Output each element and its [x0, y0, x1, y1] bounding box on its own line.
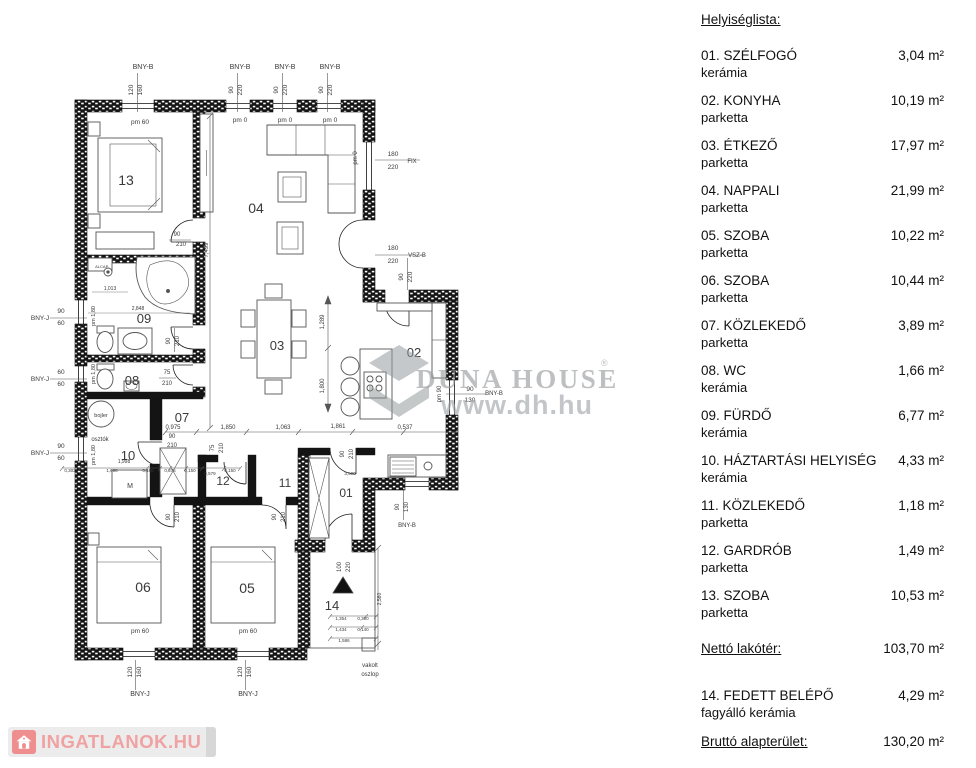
room-area: 4,29 m² [898, 688, 944, 704]
dresser [96, 232, 154, 249]
room-material: kerámia [701, 65, 944, 80]
plan-label: 90 [395, 503, 401, 510]
plan-label: 0,302 [64, 468, 76, 473]
chair [265, 380, 282, 394]
room-name: 10. HÁZTARTÁSI HELYISÉG [701, 453, 877, 469]
plan-label: ALCAP. [95, 264, 109, 269]
plan-label: 100 [337, 561, 343, 572]
room-material: kerámia [701, 470, 944, 485]
plan-label: 60 [57, 455, 65, 462]
room-name: 07. KÖZLEKEDŐ [701, 318, 806, 334]
plan-label: 1,354 [335, 616, 347, 621]
chair [241, 310, 255, 327]
counter [377, 303, 432, 311]
plan-label: 1,434 [335, 627, 347, 632]
room-list-item: 04. NAPPALI21,99 m²parketta [701, 183, 944, 215]
room-name: 01. SZÉLFOGÓ [701, 48, 797, 64]
room-name: 11. KÖZLEKEDŐ [701, 498, 805, 514]
plan-label: 60 [57, 320, 65, 327]
plan-label: M [127, 483, 133, 490]
sink [424, 462, 432, 470]
plan-label: pm 0 [233, 117, 248, 124]
room-list-item: 09. FÜRDŐ6,77 m²kerámia [701, 408, 944, 440]
plan-label: BNY-B [133, 64, 154, 71]
chair [241, 341, 255, 358]
plan-label: 1,063 [275, 425, 291, 431]
plan-label: 14 [325, 598, 339, 613]
room-list-item: 12. GARDRÓB1,49 m²parketta [701, 543, 944, 575]
room-list-item: 06. SZOBA10,44 m²parketta [701, 273, 944, 305]
plan-label: 90 [57, 308, 65, 315]
room-area: 3,04 m² [898, 48, 944, 64]
room-area: 10,44 m² [891, 273, 944, 289]
room-area: 6,77 m² [898, 408, 944, 424]
room-name: 08. WC [701, 363, 746, 379]
room-area: 10,22 m² [891, 228, 944, 244]
plan-label: BNY-B [230, 64, 251, 71]
plan-label: 3,500 [344, 471, 356, 476]
room-area: 1,49 m² [898, 543, 944, 559]
plan-label: 120 [127, 666, 134, 677]
room-area: 1,18 m² [898, 498, 944, 514]
room-list-item: 07. KÖZLEKEDŐ3,89 m²parketta [701, 318, 944, 350]
logo-cap [206, 727, 216, 757]
plan-label: 75 [210, 444, 216, 451]
room-list-item: 13. SZOBA10,53 m²parketta [701, 588, 944, 620]
net-area-label: Nettó lakótér: [701, 640, 781, 657]
plan-label: 0,375 [164, 468, 176, 473]
plan-label: 0,537 [397, 425, 413, 431]
plan-label: 220 [282, 84, 289, 95]
plan-label: BNY-J [130, 691, 150, 698]
plan-label: 160 [246, 666, 253, 677]
plan-label: 210 [219, 442, 225, 453]
plan-label: pm 1,80 [91, 445, 97, 465]
nightstand [88, 122, 100, 136]
plan-label: 220 [346, 561, 352, 572]
room-area: 10,19 m² [891, 93, 944, 109]
plan-label: 210 [281, 511, 287, 522]
plan-label: pm 1,80 [91, 364, 97, 384]
room-name: 05. SZOBA [701, 228, 769, 244]
plan-label: 1,998 [118, 459, 131, 465]
plan-label: 90 [166, 337, 172, 344]
plan-label: BNY-J [31, 315, 49, 322]
plan-label: 13 [118, 172, 134, 188]
room-area: 1,66 m² [898, 363, 944, 379]
room-list-items: 01. SZÉLFOGÓ3,04 m²kerámia02. KONYHA10,1… [701, 48, 944, 620]
plan-label: FIX [407, 159, 416, 165]
room-area: 3,89 m² [898, 318, 944, 334]
plan-label: 0,140 [357, 627, 369, 632]
plan-label: pm 60 [239, 628, 257, 635]
plan-label: 120 [128, 84, 135, 95]
house-icon [12, 730, 36, 754]
room-material: parketta [701, 110, 944, 125]
plan-label: 210 [167, 443, 178, 449]
plan-label: 08 [125, 373, 139, 388]
room-material: parketta [701, 245, 944, 260]
column [362, 638, 375, 651]
room-name: 02. KONYHA [701, 93, 781, 109]
plan-label: 90 [398, 273, 405, 281]
plan-label: 130 [404, 501, 410, 512]
plan-label: 90 [318, 86, 325, 94]
plan-label: 210 [162, 381, 173, 387]
watermark: DUNA HOUSE ® www.dh.hu [369, 345, 619, 420]
plan-label: 1,800 [320, 378, 326, 394]
entry-arrow [333, 577, 353, 593]
plan-label: 2,848 [132, 306, 145, 312]
plan-label: VSZ-B [408, 253, 426, 259]
plan-label: 60 [57, 369, 65, 376]
room-material: parketta [701, 200, 944, 215]
plan-label: 75 [164, 370, 171, 376]
plan-label: 1,861 [330, 424, 346, 430]
plan-label: pm 60 [131, 628, 149, 635]
plan-label: 1,698 [106, 468, 118, 473]
room-list-title: Helyiséglista: [701, 12, 944, 27]
net-area-row: Nettó lakótér: 103,70 m² [701, 640, 944, 657]
plan-label: 07 [175, 410, 189, 425]
plan-label: 0,579 [204, 471, 216, 476]
room-list-item: 02. KONYHA10,19 m²parketta [701, 93, 944, 125]
stool [341, 378, 359, 396]
plan-label: 0,460 [142, 468, 154, 473]
plan-label: pm 0 [278, 117, 293, 124]
plan-label: 90 [273, 86, 280, 94]
room-list-item: 08. WC1,66 m²kerámia [701, 363, 944, 395]
floor-plan: BNY-B120160pm 60BNY-B90220pm 0BNY-B90220… [0, 0, 700, 768]
plan-label: 210 [175, 335, 181, 346]
plan-label: 90 [166, 513, 172, 520]
plan-label: 180 [388, 151, 399, 158]
plan-label: 220 [237, 84, 244, 95]
plan-label: 60 [57, 381, 65, 388]
plan-label: 90 [228, 86, 235, 94]
plan-label: 0,975 [165, 425, 181, 431]
plan-label: 01 [339, 486, 353, 500]
toilet [97, 369, 113, 389]
plan-label: pm 1,80 [91, 306, 97, 326]
gross-area-label: Bruttó alapterület: [701, 733, 808, 750]
room-material: parketta [701, 290, 944, 305]
plan-label: BNY-J [31, 450, 49, 457]
plan-label: 0,150 [184, 468, 196, 473]
room-list-item-extra: 14. FEDETT BELÉPŐ 4,29 m² fagyálló kerám… [701, 688, 944, 720]
plan-label: osztók [91, 437, 109, 443]
plan-label: pm 60 [131, 119, 149, 126]
room-name: 04. NAPPALI [701, 183, 780, 199]
plan-label: BNY-J [31, 376, 49, 383]
plan-label: 160 [137, 84, 144, 95]
plan-label: 1,586 [338, 638, 350, 643]
plan-label: 11 [279, 476, 292, 490]
watermark-reg: ® [601, 358, 608, 368]
room-area: 21,99 m² [891, 183, 944, 199]
plan-label: 05 [239, 580, 255, 596]
plan-label: 04 [248, 200, 264, 216]
room-material: kerámia [701, 380, 944, 395]
plan-label: BNY-B [320, 64, 341, 71]
plan-label: 7,499 [204, 242, 210, 258]
room-name: 03. ÉTKEZŐ [701, 138, 778, 154]
plan-label: bojler [94, 413, 108, 419]
room-name: 14. FEDETT BELÉPŐ [701, 688, 834, 704]
plan-label: BNY-J [238, 691, 258, 698]
nightstand [88, 214, 100, 228]
plan-label: 90 [174, 232, 181, 238]
plan-label: 120 [237, 666, 244, 677]
plan-label: 160 [136, 666, 143, 677]
room-area: 10,53 m² [891, 588, 944, 604]
plan-label: 90 [57, 443, 65, 450]
room-list-item: 10. HÁZTARTÁSI HELYISÉG4,33 m²kerámia [701, 453, 944, 485]
plan-label: 12 [216, 474, 230, 488]
washbasin [123, 333, 147, 350]
stool [341, 357, 359, 375]
plan-label: 220 [388, 164, 399, 171]
plan-label: 1,013 [104, 286, 117, 292]
room-material: fagyálló kerámia [701, 705, 944, 720]
gross-area-value: 130,20 m² [883, 733, 944, 750]
plan-label: 220 [407, 271, 414, 282]
gross-area-row: Bruttó alapterület: 130,20 m² [701, 733, 944, 750]
room-area: 17,97 m² [891, 138, 944, 154]
logo-text: INGATLANOK.HU [41, 731, 201, 753]
plan-label: 220 [327, 84, 334, 95]
plan-label: pm 0 [323, 117, 338, 124]
room-area: 4,33 m² [898, 453, 944, 469]
plan-label: 06 [135, 579, 151, 595]
room-list-panel: Helyiséglista: 01. SZÉLFOGÓ3,04 m²kerámi… [701, 12, 944, 750]
plan-label: 09 [137, 311, 151, 326]
corner-bathtub [136, 257, 195, 314]
page: BNY-B120160pm 60BNY-B90220pm 0BNY-B90220… [0, 0, 976, 768]
plan-label: 220 [388, 258, 399, 265]
room-material: parketta [701, 515, 944, 530]
room-list-item: 01. SZÉLFOGÓ3,04 m²kerámia [701, 48, 944, 80]
net-area-value: 103,70 m² [883, 640, 944, 657]
bed-06 [97, 547, 161, 623]
plan-label: 90 [340, 450, 346, 457]
plan-label: pm 0 [353, 151, 359, 165]
room-material: kerámia [701, 425, 944, 440]
plan-label: 90 [169, 434, 176, 440]
room-material: parketta [701, 605, 944, 620]
room-material: parketta [701, 335, 944, 350]
stool [341, 398, 359, 416]
room-material: parketta [701, 155, 944, 170]
chair [265, 284, 282, 298]
room-name: 06. SZOBA [701, 273, 769, 289]
plan-label: 0,300 [357, 616, 369, 621]
plan-label: 1,850 [220, 425, 236, 431]
plan-label: 1,289 [320, 314, 326, 330]
room-list-item: 03. ÉTKEZŐ17,97 m²parketta [701, 138, 944, 170]
plan-label: 210 [176, 242, 187, 248]
plan-label: 2,580 [377, 593, 383, 606]
plan-label: 90 [272, 513, 278, 520]
chair [292, 310, 306, 327]
room-name: 13. SZOBA [701, 588, 769, 604]
plan-label: 0,150 [224, 468, 236, 473]
plan-label: BNY-B [275, 64, 296, 71]
plan-label: 210 [349, 448, 355, 459]
room-name: 09. FÜRDŐ [701, 408, 772, 424]
ingatlanok-logo: INGATLANOK.HU [8, 727, 216, 757]
plan-label: 210 [175, 511, 181, 522]
nightstand [88, 533, 99, 545]
room-list-item: 05. SZOBA10,22 m²parketta [701, 228, 944, 260]
plan-label: vakolt [362, 663, 378, 669]
plan-label: oszlop [361, 672, 379, 678]
room-list-item: 11. KÖZLEKEDŐ1,18 m²parketta [701, 498, 944, 530]
chair [292, 341, 306, 358]
watermark-url: www.dh.hu [440, 390, 593, 420]
plan-label: BNY-B [398, 523, 416, 529]
toilet [97, 332, 113, 353]
plan-label: 180 [388, 245, 399, 252]
room-name: 12. GARDRÓB [701, 543, 792, 559]
room-material: parketta [701, 560, 944, 575]
plan-label: 03 [270, 338, 284, 353]
